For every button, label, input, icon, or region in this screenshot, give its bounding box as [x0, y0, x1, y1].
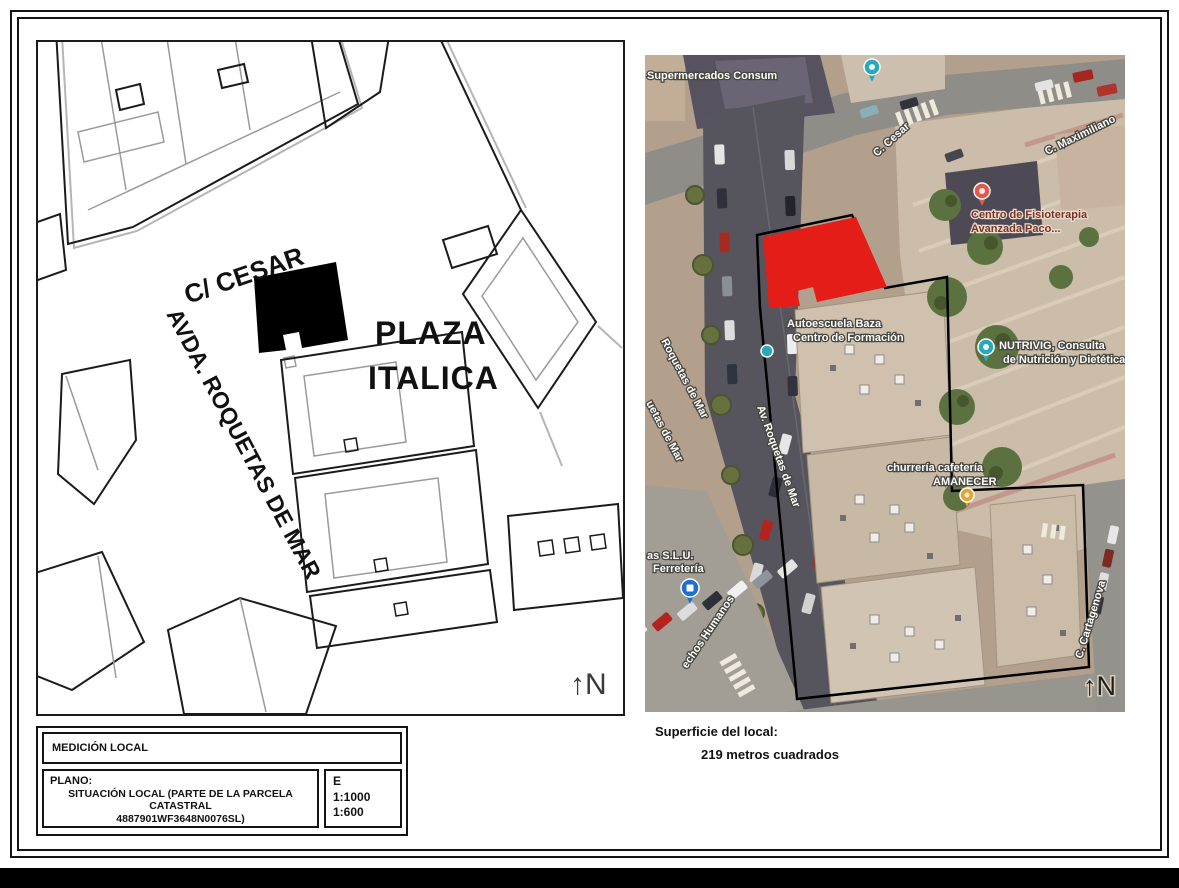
surface-value: 219 metros cuadrados: [701, 747, 839, 762]
label-churreria-1: churrería cafetería: [887, 462, 984, 474]
plaza-italica-label-1: PLAZA: [375, 315, 487, 351]
cadastral-plan-panel: C/ CESAR PLAZA ITALICA AVDA. ROQUETAS DE…: [36, 40, 625, 716]
bottom-black-bar: [0, 868, 1179, 888]
plaza-italica-label-2: ITALICA: [368, 360, 499, 396]
label-autoescuela-1: Autoescuela Baza: [787, 318, 882, 330]
label-fisioterapia-2: Avanzada Paco...: [971, 223, 1060, 235]
label-churreria-2: AMANECER: [933, 476, 997, 488]
plan-sheet: C/ CESAR PLAZA ITALICA AVDA. ROQUETAS DE…: [0, 0, 1179, 888]
label-nutrivig-2: de Nutrición y Dietética: [1003, 354, 1125, 366]
cadastral-reference: 4887901WF3648N0076SL): [50, 813, 311, 825]
label-fisioterapia-1: Centro de Fisioterapia: [971, 209, 1088, 221]
bottom-right-building: [508, 504, 623, 610]
surface-title: Superficie del local:: [655, 724, 839, 739]
label-autoescuela-2: Centro de Formación: [793, 332, 904, 344]
label-slu: as S.L.U.: [647, 550, 693, 562]
plano-label: PLANO:: [50, 775, 311, 787]
bottom-center-parcel: [168, 598, 336, 714]
scale-letter: E: [333, 774, 393, 790]
plano-box: PLANO: SITUACIÓN LOCAL (PARTE DE LA PARC…: [42, 769, 319, 828]
project-title-box: MEDICIÓN LOCAL: [42, 732, 402, 764]
autoescuela-place-pin: [761, 345, 773, 357]
scale-value-2: 1:600: [333, 805, 393, 821]
top-left-parcel-block: [56, 42, 358, 244]
label-supermercados: Supermercados Consum: [647, 70, 777, 82]
plano-description-line1: SITUACIÓN LOCAL (PARTE DE LA PARCELA CAT…: [50, 788, 311, 812]
satellite-map-panel: Supermercados Consum C. Cesar C. Maximil…: [645, 55, 1125, 712]
scale-box: E 1:1000 1:600: [324, 769, 402, 828]
project-title: MEDICIÓN LOCAL: [52, 742, 148, 754]
map-north-indicator: ↑N: [1083, 671, 1116, 701]
title-block: MEDICIÓN LOCAL PLANO: SITUACIÓN LOCAL (P…: [36, 726, 408, 836]
scan-echo-lines: [62, 42, 622, 466]
label-nutrivig-1: NUTRIVIG, Consulta: [999, 340, 1106, 352]
label-ferreteria: Ferretería: [653, 563, 705, 575]
top-right-parcel: [310, 42, 521, 210]
surface-note: Superficie del local: 219 metros cuadrad…: [655, 724, 839, 762]
scale-value-1: 1:1000: [333, 790, 393, 806]
plan-north-indicator: ↑N: [570, 668, 607, 701]
left-margin-parcels: [38, 214, 144, 690]
